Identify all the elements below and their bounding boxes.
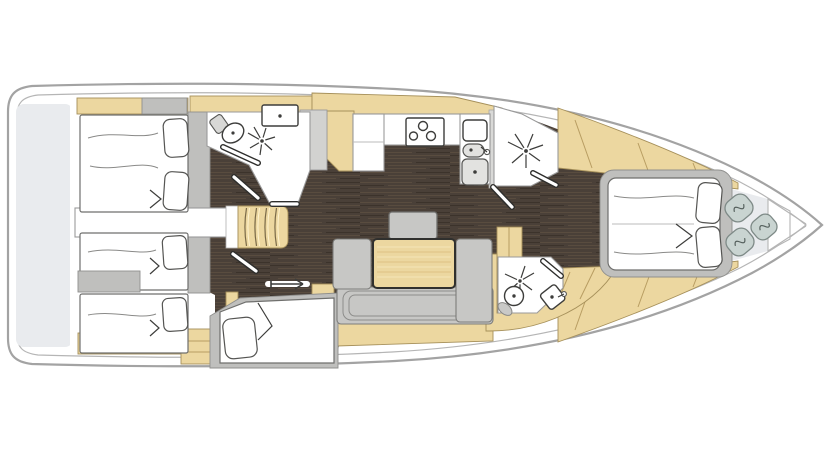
port-band-locker [142, 98, 187, 114]
floor-plan-canvas [0, 0, 835, 450]
salon-table [373, 239, 455, 288]
companionway-stairs [238, 206, 288, 248]
fridge-top-icon [463, 120, 487, 141]
companionway-landing [226, 206, 238, 248]
salon-stool [389, 212, 437, 239]
stbd-cabin-wall [188, 234, 210, 293]
stove-icon [406, 118, 444, 146]
owner-cabin-bed [600, 170, 732, 277]
sink-icon [462, 144, 490, 185]
galley-wardrobe [327, 111, 354, 171]
yacht-floor-plan [0, 0, 835, 450]
aft-deck-platform [16, 104, 73, 347]
skipper-berth [210, 293, 338, 368]
stbd-aft-berth-lower [80, 294, 188, 353]
washbasin-icon [262, 105, 298, 126]
aft-seat-locker [78, 271, 140, 292]
port-aft-cabin-bed [80, 115, 189, 212]
